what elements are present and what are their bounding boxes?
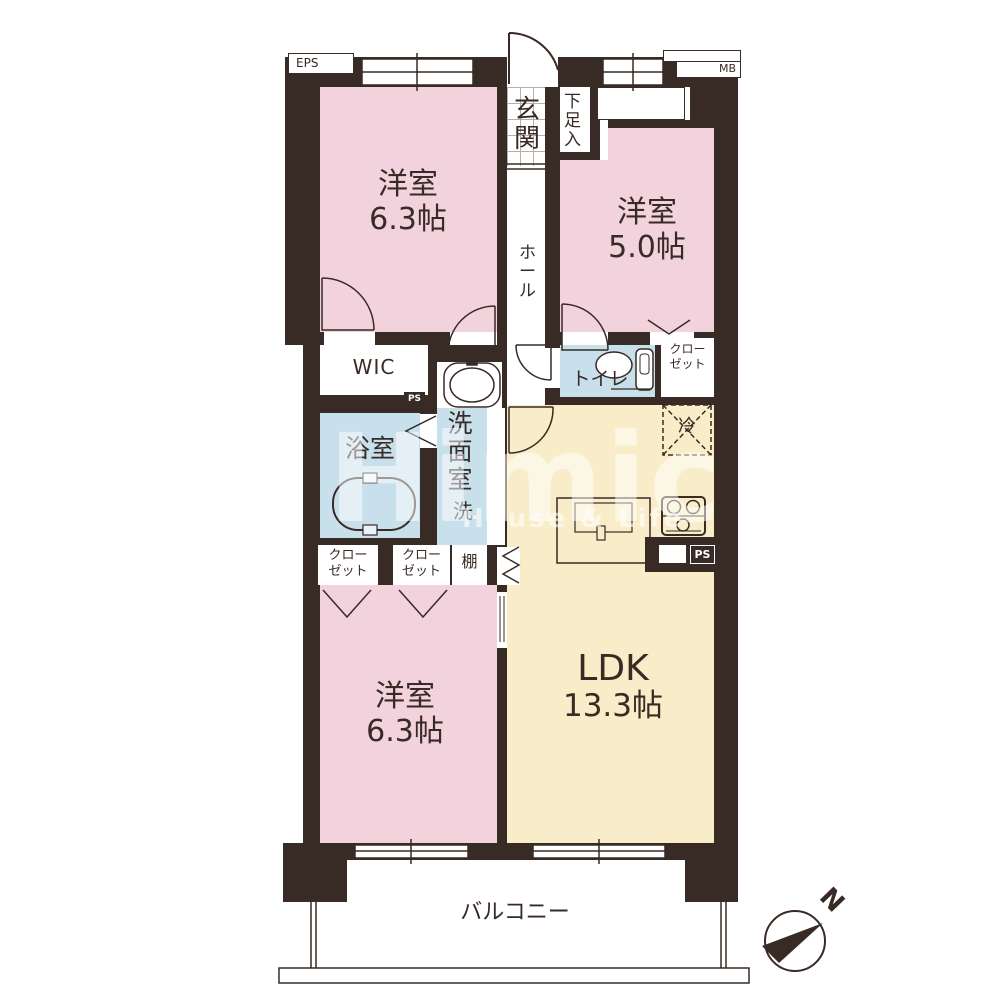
wash-basin-icon bbox=[444, 359, 500, 407]
kitchen-counter-icon bbox=[557, 498, 650, 563]
entrance-label: 玄関 bbox=[512, 96, 542, 154]
folding-door-closet-c2 bbox=[399, 590, 447, 617]
ldk-label: LDK 13.3帖 bbox=[538, 648, 688, 725]
bedroom-b-label: 洋室 5.0帖 bbox=[577, 196, 717, 265]
closet-b-line1: クロー bbox=[661, 342, 714, 357]
refrigerator-label: 冷 bbox=[672, 417, 702, 438]
window-top-right bbox=[603, 53, 663, 91]
closet-c1-label: クロー ゼット bbox=[318, 548, 378, 581]
folding-door-closet-c1 bbox=[323, 590, 371, 617]
door-toilet bbox=[516, 345, 551, 380]
stove-icon bbox=[662, 497, 705, 535]
window-bottom-right bbox=[533, 839, 665, 864]
washer-label: 洗 bbox=[450, 500, 476, 523]
compass-icon bbox=[762, 911, 825, 971]
bathroom-label: 浴室 bbox=[328, 435, 412, 464]
bedroom-c-size: 6.3帖 bbox=[335, 715, 475, 750]
closet-c1-line2: ゼット bbox=[318, 564, 378, 580]
door-bedroomA-hall bbox=[448, 306, 495, 353]
closet-c1-line1: クロー bbox=[318, 548, 378, 564]
door-bedroomA-wic bbox=[322, 278, 374, 330]
bedroom-b-size: 5.0帖 bbox=[577, 231, 717, 266]
closet-c2-label: クロー ゼット bbox=[393, 548, 450, 581]
shoe-cabinet-label: 下足入 bbox=[563, 93, 582, 150]
folding-door-ldk-corridor bbox=[503, 547, 519, 583]
folding-door-closet-b bbox=[648, 320, 690, 334]
closet-b-label: クロー ゼット bbox=[661, 342, 714, 372]
ldk-name: LDK bbox=[538, 648, 688, 689]
bedroom-c-label: 洋室 6.3帖 bbox=[335, 680, 475, 749]
door-bedroomB-hall bbox=[562, 304, 608, 350]
bedroom-a-size: 6.3帖 bbox=[338, 203, 478, 238]
bedroom-c-name: 洋室 bbox=[335, 680, 475, 715]
shelf-label: 棚 bbox=[452, 553, 487, 571]
bathtub-icon bbox=[333, 473, 415, 535]
washroom-label: 洗面室 bbox=[446, 410, 474, 494]
plan-linework bbox=[0, 0, 1000, 1000]
hallway-label: ホール bbox=[518, 244, 537, 301]
ldk-size: 13.3帖 bbox=[538, 689, 688, 725]
bedroom-a-name: 洋室 bbox=[338, 168, 478, 203]
window-top-left bbox=[362, 53, 473, 91]
wic-label: WIC bbox=[320, 356, 428, 379]
window-bottom-left bbox=[355, 839, 468, 864]
entrance-door-swing bbox=[509, 33, 558, 84]
entrance-step-line bbox=[507, 164, 545, 169]
closet-c2-line2: ゼット bbox=[393, 564, 450, 580]
door-hall-ldk bbox=[509, 407, 553, 453]
sliding-door-bedroomC bbox=[500, 596, 504, 642]
balcony-label: バルコニー bbox=[455, 900, 575, 925]
closet-c2-line1: クロー bbox=[393, 548, 450, 564]
bedroom-a-label: 洋室 6.3帖 bbox=[338, 168, 478, 237]
toilet-label: トイレ bbox=[560, 369, 640, 391]
closet-b-line2: ゼット bbox=[661, 357, 714, 372]
floor-plan: EPS MB PS PS 洋室 6.3帖 洋室 5.0帖 洋室 6.3帖 LDK… bbox=[0, 0, 1000, 1000]
bedroom-b-name: 洋室 bbox=[577, 196, 717, 231]
